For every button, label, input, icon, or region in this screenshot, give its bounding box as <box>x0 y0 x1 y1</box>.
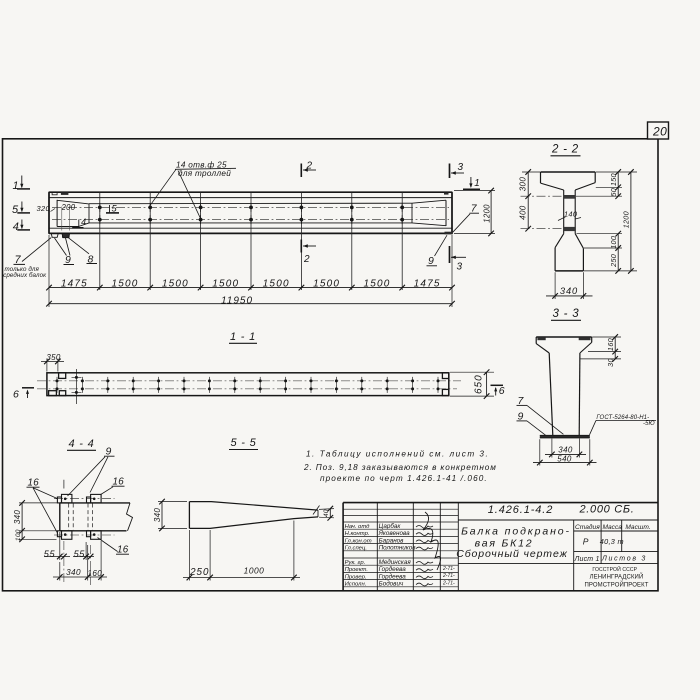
svg-text:Проект.: Проект. <box>345 567 368 573</box>
svg-text:7: 7 <box>471 203 478 215</box>
svg-text:6: 6 <box>13 388 19 400</box>
svg-text:250: 250 <box>609 254 618 268</box>
svg-text:Бодович: Бодович <box>379 580 404 588</box>
svg-text:4 - 4: 4 - 4 <box>68 438 94 450</box>
svg-text:11950: 11950 <box>221 295 253 306</box>
svg-text:проекте по черт 1.426.1-41 /.: проекте по черт 1.426.1-41 /.060. <box>320 474 488 483</box>
svg-text:2. Поз. 9,18 заказываются в ко: 2. Поз. 9,18 заказываются в конкретном <box>303 463 497 472</box>
svg-text:140: 140 <box>564 209 578 218</box>
svg-text:9: 9 <box>106 445 112 457</box>
svg-text:Гордеева: Гордеева <box>379 565 407 573</box>
svg-text:2.000 СБ.: 2.000 СБ. <box>578 504 634 516</box>
svg-text:1500: 1500 <box>363 278 390 289</box>
svg-text:Баранов: Баранов <box>379 537 405 544</box>
svg-text:-5Ю: -5Ю <box>643 421 655 427</box>
svg-text:2: 2 <box>303 254 310 265</box>
svg-text:3: 3 <box>457 262 463 273</box>
svg-text:100: 100 <box>15 529 22 541</box>
svg-text:300: 300 <box>518 177 527 192</box>
svg-text:150: 150 <box>609 173 618 186</box>
svg-text:Гордеева: Гордеева <box>379 572 407 580</box>
svg-text:Рук. гр.: Рук. гр. <box>345 560 366 566</box>
svg-text:340: 340 <box>558 446 573 455</box>
svg-text:Лист 1: Лист 1 <box>574 556 600 563</box>
svg-text:1500: 1500 <box>263 278 290 289</box>
svg-text:1200: 1200 <box>482 204 491 223</box>
svg-text:340: 340 <box>66 568 81 577</box>
svg-text:ЛЕНИНГРАДСКИЙ: ЛЕНИНГРАДСКИЙ <box>590 573 644 581</box>
svg-text:4: 4 <box>13 221 19 233</box>
svg-text:2 - 2: 2 - 2 <box>551 143 579 155</box>
svg-text:3: 3 <box>458 162 464 173</box>
svg-text:1500: 1500 <box>313 278 340 289</box>
svg-text:Сборочный чертеж: Сборочный чертеж <box>456 548 567 560</box>
svg-text:средних балок: средних балок <box>3 272 47 279</box>
svg-text:1500: 1500 <box>212 278 239 289</box>
svg-text:2-71-: 2-71- <box>442 573 455 579</box>
svg-text:5: 5 <box>12 204 19 216</box>
svg-text:Яковенова: Яковенова <box>378 530 411 537</box>
svg-text:5: 5 <box>112 203 118 213</box>
svg-text:40: 40 <box>323 509 330 517</box>
svg-text:1: 1 <box>13 180 19 192</box>
svg-text:16: 16 <box>28 477 40 488</box>
svg-text:400: 400 <box>518 205 527 220</box>
svg-text:650: 650 <box>474 374 485 394</box>
svg-text:5 - 5: 5 - 5 <box>230 437 256 449</box>
svg-text:20: 20 <box>652 125 667 139</box>
svg-text:Провер.: Провер. <box>345 574 367 580</box>
svg-text:2-71-: 2-71- <box>442 580 455 586</box>
svg-text:ГОССТРОЙ СССР: ГОССТРОЙ СССР <box>592 565 637 573</box>
svg-text:Масшт.: Масшт. <box>625 524 650 531</box>
svg-text:1.426.1-4.2: 1.426.1-4.2 <box>488 504 554 516</box>
svg-text:1200: 1200 <box>622 211 631 228</box>
svg-text:100: 100 <box>609 236 618 249</box>
svg-text:1500: 1500 <box>162 278 189 289</box>
svg-text:55: 55 <box>74 549 86 559</box>
svg-text:ГОСТ-5264-80-Н1-: ГОСТ-5264-80-Н1- <box>596 415 649 421</box>
svg-text:Масса: Масса <box>602 524 622 531</box>
svg-text:Листов 3: Листов 3 <box>601 556 647 563</box>
svg-text:160: 160 <box>606 338 615 351</box>
svg-text:1500: 1500 <box>111 278 138 289</box>
svg-text:Царбак: Царбак <box>379 522 402 530</box>
svg-text:16: 16 <box>113 476 125 487</box>
svg-text:40,3 т: 40,3 т <box>600 537 624 546</box>
svg-text:340: 340 <box>560 286 578 296</box>
svg-text:160: 160 <box>87 569 102 578</box>
svg-text:Исполн.: Исполн. <box>345 582 367 588</box>
svg-text:3 - 3: 3 - 3 <box>552 308 579 320</box>
svg-text:Мединская: Мединская <box>379 558 412 566</box>
svg-text:1 - 1: 1 - 1 <box>230 331 256 343</box>
svg-text:1: 1 <box>474 178 480 189</box>
svg-text:Балка подкрано-: Балка подкрано- <box>461 526 571 538</box>
svg-text:Нач. отд: Нач. отд <box>345 524 371 530</box>
svg-text:2: 2 <box>306 161 313 172</box>
svg-text:для троллей: для троллей <box>178 169 231 178</box>
svg-text:340: 340 <box>13 510 22 524</box>
svg-text:ПРОМСТРОЙПРОЕКТ: ПРОМСТРОЙПРОЕКТ <box>584 580 648 588</box>
svg-text:16: 16 <box>117 544 129 555</box>
svg-text:350: 350 <box>46 353 60 362</box>
svg-text:1. Таблицу исполнений см. лис: 1. Таблицу исполнений см. лист 3. <box>306 450 489 459</box>
svg-text:55: 55 <box>44 549 56 559</box>
svg-text:50: 50 <box>609 188 618 197</box>
svg-text:1000: 1000 <box>244 565 265 575</box>
svg-text:250: 250 <box>189 567 209 578</box>
svg-text:Стадия: Стадия <box>575 523 600 531</box>
svg-text:Гл.кон.от: Гл.кон.от <box>345 538 372 544</box>
svg-text:6: 6 <box>499 385 505 397</box>
svg-text:Р: Р <box>583 537 589 547</box>
svg-text:30: 30 <box>606 358 615 367</box>
svg-text:4: 4 <box>81 217 86 227</box>
svg-text:320: 320 <box>37 204 51 213</box>
svg-text:Полотников: Полотников <box>379 545 417 552</box>
svg-text:340: 340 <box>153 508 162 522</box>
svg-text:200: 200 <box>61 203 76 212</box>
svg-text:540: 540 <box>557 454 572 463</box>
svg-text:Гл.спец.: Гл.спец. <box>345 546 367 552</box>
svg-text:Н.контр.: Н.контр. <box>345 531 370 537</box>
svg-text:1475: 1475 <box>414 278 441 289</box>
svg-text:1475: 1475 <box>61 278 88 289</box>
svg-text:9: 9 <box>428 255 434 267</box>
svg-text:2-71-: 2-71- <box>442 566 455 572</box>
